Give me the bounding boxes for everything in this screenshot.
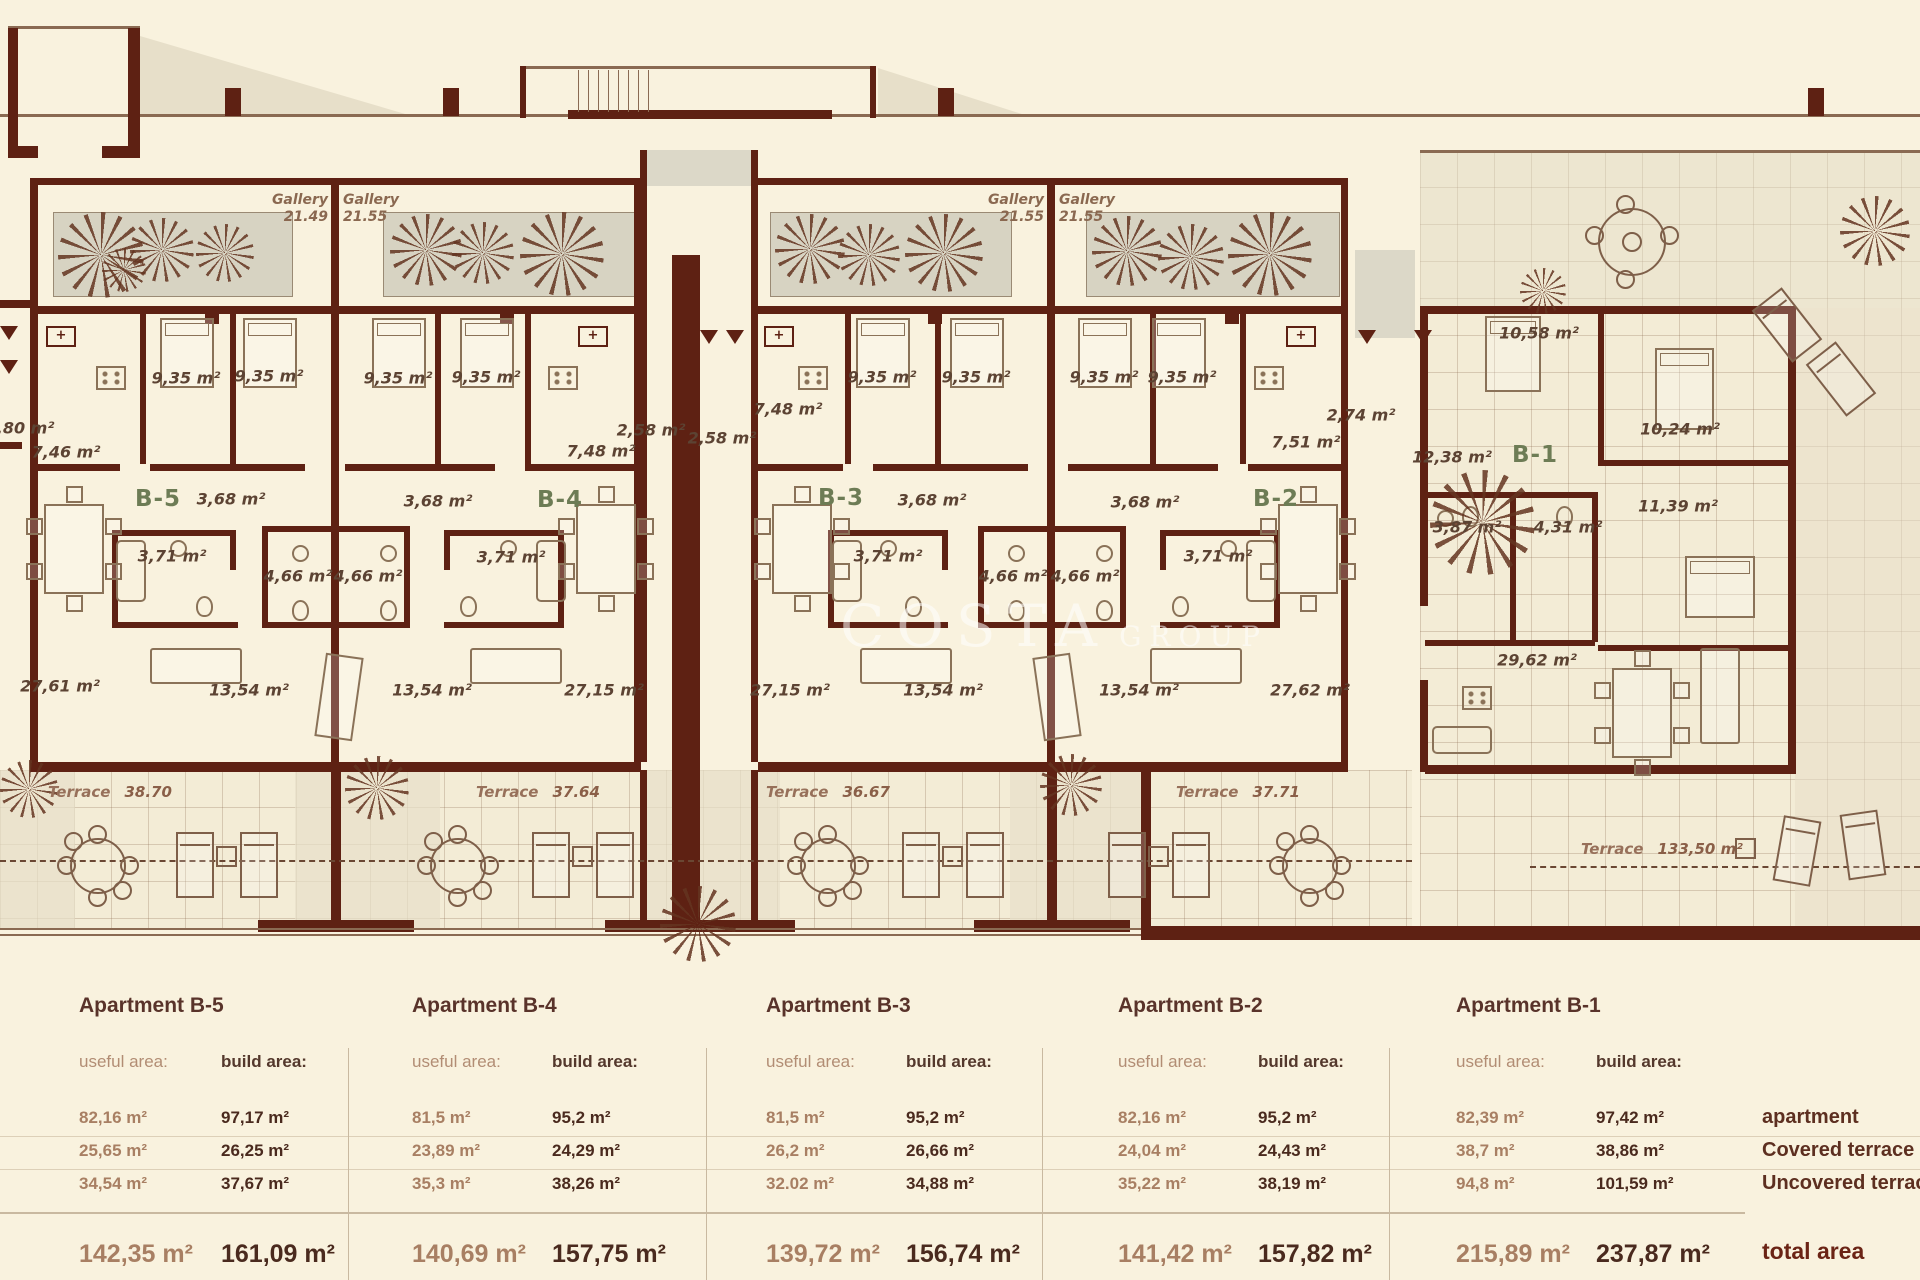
- gallery-name: Gallery: [272, 192, 328, 208]
- room-area-label: 4,66 m²: [1051, 567, 1120, 586]
- down-arrow-icon: [0, 360, 18, 374]
- stairs-icon: [588, 70, 589, 112]
- stairs-icon: [648, 70, 649, 112]
- stairs-icon: [618, 70, 619, 112]
- useful-area-value: 82,16 m²: [1118, 1108, 1186, 1128]
- chair-icon: [480, 856, 499, 875]
- chair-icon: [1260, 563, 1277, 580]
- chair-icon: [794, 595, 811, 612]
- room-area-label: 7,48 m²: [567, 442, 636, 461]
- room-area-label: 9,35 m²: [364, 369, 433, 388]
- useful-total-value: 142,35 m²: [79, 1240, 193, 1269]
- palm-icon: [196, 224, 254, 282]
- column: [225, 88, 241, 116]
- bathtub-icon: [1432, 726, 1492, 754]
- wall: [640, 150, 647, 762]
- room-area-label: 7,48 m²: [754, 400, 823, 419]
- apartment-id-label: B-5: [135, 486, 181, 512]
- chair-icon: [787, 856, 806, 875]
- chair-icon: [1673, 727, 1690, 744]
- wall: [640, 770, 647, 930]
- stove-icon: [1254, 366, 1284, 390]
- wall: [444, 530, 450, 570]
- wall: [8, 146, 38, 158]
- build-area-header: build area:: [221, 1052, 307, 1072]
- divider: [0, 1136, 1920, 1137]
- room-area-label: 27,61 m²: [20, 677, 100, 696]
- chair-icon: [818, 888, 837, 907]
- room-area-label: 9,35 m²: [1148, 368, 1217, 387]
- column-divider: [706, 1048, 707, 1280]
- room-area-label: 9,35 m²: [452, 368, 521, 387]
- stairs-icon: [578, 70, 579, 112]
- chair-icon: [843, 881, 862, 900]
- watermark-text: COSTA: [840, 592, 1109, 660]
- useful-area-value: 35,22 m²: [1118, 1174, 1186, 1194]
- room-area-label: 3,71 m²: [854, 547, 923, 566]
- column: [1808, 88, 1824, 116]
- useful-area-value: 25,65 m²: [79, 1141, 147, 1161]
- chair-icon: [558, 563, 575, 580]
- chair-icon: [66, 595, 83, 612]
- wall: [1425, 765, 1795, 774]
- useful-total-value: 139,72 m²: [766, 1240, 880, 1269]
- useful-area-value: 81,5 m²: [412, 1108, 471, 1128]
- gallery-level: 21.55: [1000, 209, 1044, 225]
- room-area-label: 11,39 m²: [1638, 497, 1718, 516]
- terrace-label: Terrace37.64: [476, 783, 600, 801]
- useful-total-value: 141,42 m²: [1118, 1240, 1232, 1269]
- palm-icon: [520, 212, 604, 296]
- terrace-area: 37.71: [1252, 783, 1299, 801]
- sofa-icon: [1700, 648, 1740, 744]
- sink-icon: [380, 545, 397, 562]
- terrace-label: Terrace37.71: [1176, 783, 1300, 801]
- room-area-label: 3,68 m²: [1111, 493, 1180, 512]
- useful-area-value: 26,2 m²: [766, 1141, 825, 1161]
- room-area-label: 27,15 m²: [750, 681, 830, 700]
- palm-icon: [1228, 212, 1312, 296]
- room-area-label: 4,66 m²: [264, 567, 333, 586]
- terrace-label: Terrace36.67: [766, 783, 890, 801]
- room-area-label: 13,54 m²: [1099, 681, 1179, 700]
- wall: [1598, 645, 1796, 651]
- build-area-value: 97,42 m²: [1596, 1108, 1664, 1128]
- apartment-id-label: B-4: [537, 487, 583, 513]
- sink-icon: [292, 545, 309, 562]
- build-total-value: 161,09 m²: [221, 1240, 335, 1269]
- down-arrow-icon: [726, 330, 744, 344]
- chair-icon: [598, 486, 615, 503]
- parasol-table-icon: [1598, 208, 1666, 276]
- gallery-level: 21.55: [1059, 209, 1103, 225]
- wall: [1598, 460, 1796, 466]
- wall: [1225, 306, 1239, 324]
- apartment-id-label: B-1: [1512, 442, 1558, 468]
- gallery-level: 21.55: [343, 209, 387, 225]
- apartment-column-title: Apartment B-3: [766, 994, 911, 1018]
- chair-icon: [637, 563, 654, 580]
- room-area-label: 9,35 m²: [152, 369, 221, 388]
- apartment-column-title: Apartment B-5: [79, 994, 224, 1018]
- apartment-id-label: B-3: [818, 485, 864, 511]
- wall: [525, 464, 640, 471]
- chair-icon: [637, 518, 654, 535]
- electrical-panel-icon: +: [46, 326, 76, 347]
- column-divider: [1042, 1048, 1043, 1280]
- chair-icon: [1585, 226, 1604, 245]
- wall: [974, 920, 1130, 932]
- room-area-label: 3,68 m²: [898, 491, 967, 510]
- chair-icon: [1634, 759, 1651, 776]
- gallery-label: Gallery21.55: [343, 192, 399, 226]
- lounger-icon: [176, 832, 214, 898]
- chair-icon: [1634, 650, 1651, 667]
- round-table-icon: [800, 838, 856, 894]
- electrical-panel-icon: +: [1286, 326, 1316, 347]
- wall: [845, 313, 851, 464]
- stairs-icon: [608, 70, 609, 112]
- wall: [331, 770, 341, 922]
- side-table-icon: [942, 846, 963, 867]
- palm-icon: [838, 224, 900, 286]
- build-area-value: 26,66 m²: [906, 1141, 974, 1161]
- build-area-header: build area:: [1258, 1052, 1344, 1072]
- dining-table-icon: [1278, 504, 1338, 594]
- useful-area-value: 81,5 m²: [766, 1108, 825, 1128]
- chair-icon: [1339, 518, 1356, 535]
- useful-area-value: 34,54 m²: [79, 1174, 147, 1194]
- chair-icon: [558, 518, 575, 535]
- room-area-label: 27,15 m²: [564, 681, 644, 700]
- wall: [935, 313, 941, 464]
- palm-icon: [1840, 196, 1910, 266]
- watermark: COSTAGROUP: [840, 592, 1268, 660]
- wall: [751, 770, 758, 930]
- wall: [112, 530, 232, 536]
- column: [443, 88, 459, 116]
- build-total-value: 157,75 m²: [552, 1240, 666, 1269]
- wall: [751, 150, 758, 762]
- palm-icon: [1092, 216, 1162, 286]
- wall: [758, 464, 843, 471]
- chair-icon: [1660, 226, 1679, 245]
- side-table-icon: [1148, 846, 1169, 867]
- build-total-value: 156,74 m²: [906, 1240, 1020, 1269]
- toilet-icon: [460, 596, 477, 617]
- useful-area-value: 23,89 m²: [412, 1141, 480, 1161]
- stove-icon: [96, 366, 126, 390]
- useful-area-value: 94,8 m²: [1456, 1174, 1515, 1194]
- gallery-name: Gallery: [988, 192, 1044, 208]
- build-area-value: 37,67 m²: [221, 1174, 289, 1194]
- toilet-icon: [292, 600, 309, 621]
- terrace-edge-line: [1420, 150, 1920, 153]
- wall: [444, 622, 564, 628]
- stove-icon: [1462, 686, 1492, 710]
- useful-area-value: 24,04 m²: [1118, 1141, 1186, 1161]
- room-area-label: 4,31 m²: [1534, 518, 1603, 537]
- wardrobe-icon: [1032, 653, 1081, 741]
- chair-icon: [26, 518, 43, 535]
- gallery-name: Gallery: [1059, 192, 1115, 208]
- elevator-icon: [8, 26, 140, 29]
- chair-icon: [818, 825, 837, 844]
- toilet-icon: [380, 600, 397, 621]
- room-area-label: 4,66 m²: [979, 567, 1048, 586]
- apartment-id-label: B-2: [1253, 486, 1299, 512]
- room-area-label: 2,74 m²: [1327, 406, 1396, 425]
- wall: [0, 442, 22, 449]
- room-area-label: 10,24 m²: [1640, 420, 1720, 439]
- chair-icon: [1269, 856, 1288, 875]
- wall: [520, 66, 526, 118]
- chair-icon: [1332, 856, 1351, 875]
- wall: [672, 255, 700, 932]
- palm-icon: [775, 214, 845, 284]
- room-area-label: 3,71 m²: [138, 547, 207, 566]
- row-label-apartment: apartment: [1762, 1106, 1859, 1129]
- chair-icon: [850, 856, 869, 875]
- room-area-label: 3,68 m²: [404, 492, 473, 511]
- lounger-icon: [532, 832, 570, 898]
- dining-table-icon: [1612, 668, 1672, 758]
- chair-icon: [1594, 682, 1611, 699]
- side-table-icon: [216, 846, 237, 867]
- lounger-icon: [902, 832, 940, 898]
- palm-icon: [452, 222, 514, 284]
- chair-icon: [88, 825, 107, 844]
- chair-icon: [417, 856, 436, 875]
- lounger-icon: [1108, 832, 1146, 898]
- wall: [102, 146, 140, 158]
- wall: [525, 313, 531, 464]
- shadow: [140, 36, 412, 116]
- column-divider: [1389, 1048, 1390, 1280]
- useful-area-header: useful area:: [1456, 1052, 1545, 1072]
- sink-icon: [1008, 545, 1025, 562]
- wall: [230, 530, 236, 570]
- room-area-label: 13,54 m²: [392, 681, 472, 700]
- chair-icon: [1616, 195, 1635, 214]
- wall: [1420, 680, 1428, 772]
- build-area-value: 38,86 m²: [1596, 1141, 1664, 1161]
- chair-icon: [448, 888, 467, 907]
- entry-walkway: [1355, 250, 1415, 338]
- chair-icon: [1276, 832, 1295, 851]
- wall: [1068, 464, 1218, 471]
- build-area-header: build area:: [906, 1052, 992, 1072]
- room-area-label: 3,71 m²: [477, 548, 546, 567]
- divider: [0, 1212, 1745, 1214]
- sink-icon: [1096, 545, 1113, 562]
- room-area-label: 9,35 m²: [1070, 368, 1139, 387]
- terrace-area: 38.70: [124, 783, 171, 801]
- build-area-value: 38,26 m²: [552, 1174, 620, 1194]
- room-area-label: 2,58 m²: [617, 421, 686, 440]
- wall: [1240, 313, 1246, 464]
- room-area-label: 9,35 m²: [848, 368, 917, 387]
- useful-area-header: useful area:: [412, 1052, 501, 1072]
- wall: [1788, 306, 1796, 774]
- build-area-value: 24,29 m²: [552, 1141, 620, 1161]
- useful-area-value: 32.02 m²: [766, 1174, 834, 1194]
- chair-icon: [754, 563, 771, 580]
- floor-plan-page: + + + + Gallery21.49 Gallery21.55 Galler…: [0, 0, 1920, 1280]
- useful-total-value: 215,89 m²: [1456, 1240, 1570, 1269]
- room-area-label: 3,71 m²: [1184, 547, 1253, 566]
- bed-icon: [1655, 348, 1714, 430]
- bed-icon: [1685, 556, 1755, 618]
- terrace-area: 133,50 m²: [1657, 840, 1742, 858]
- chair-icon: [794, 486, 811, 503]
- room-area-label: 7,46 m²: [32, 443, 101, 462]
- lounger-icon: [240, 832, 278, 898]
- wall: [150, 464, 305, 471]
- row-label-total-area: total area: [1762, 1238, 1864, 1265]
- walkway-line: [0, 114, 1920, 117]
- chair-icon: [26, 563, 43, 580]
- useful-total-value: 140,69 m²: [412, 1240, 526, 1269]
- chair-icon: [66, 486, 83, 503]
- gallery-label: Gallery21.55: [1059, 192, 1115, 226]
- room-area-label: 13,54 m²: [209, 681, 289, 700]
- chair-icon: [1616, 270, 1635, 289]
- build-area-header: build area:: [1596, 1052, 1682, 1072]
- wall: [0, 300, 30, 308]
- chair-icon: [448, 825, 467, 844]
- round-table-icon: [430, 838, 486, 894]
- wall: [870, 66, 876, 118]
- build-area-value: 97,17 m²: [221, 1108, 289, 1128]
- room-area-label: 3,68 m²: [197, 490, 266, 509]
- chair-icon: [1300, 825, 1319, 844]
- palm-icon: [345, 756, 409, 820]
- chair-icon: [424, 832, 443, 851]
- chair-icon: [754, 518, 771, 535]
- wall: [1592, 492, 1598, 642]
- gallery-name: Gallery: [343, 192, 399, 208]
- wall: [128, 28, 140, 152]
- divider: [0, 1169, 1920, 1170]
- chair-icon: [1673, 682, 1690, 699]
- terrace-label: Terrace38.70: [48, 783, 172, 801]
- gallery-label: Gallery21.55: [964, 192, 1044, 226]
- wall: [978, 526, 1126, 532]
- row-label-covered-terrace: Covered terrace: [1762, 1139, 1914, 1162]
- chair-icon: [88, 888, 107, 907]
- wall: [873, 464, 1028, 471]
- palm-icon: [660, 886, 736, 962]
- apartment-column-title: Apartment B-1: [1456, 994, 1601, 1018]
- wall: [230, 313, 236, 464]
- chair-icon: [473, 881, 492, 900]
- chair-icon: [105, 563, 122, 580]
- build-area-value: 95,2 m²: [1258, 1108, 1317, 1128]
- terrace-area: 37.64: [552, 783, 599, 801]
- dining-table-icon: [772, 504, 832, 594]
- wall: [35, 464, 120, 471]
- chair-icon: [598, 595, 615, 612]
- room-area-label: 2,58 m²: [688, 429, 757, 448]
- terrace-name: Terrace: [1176, 783, 1238, 801]
- chair-icon: [1325, 881, 1344, 900]
- wall: [1425, 640, 1595, 646]
- build-area-value: 38,19 m²: [1258, 1174, 1326, 1194]
- wall: [444, 530, 564, 536]
- palm-icon: [1158, 224, 1224, 290]
- lounger-icon: [1172, 832, 1210, 898]
- chair-icon: [1300, 888, 1319, 907]
- apartment-column-title: Apartment B-4: [412, 994, 557, 1018]
- chair-icon: [1594, 727, 1611, 744]
- down-arrow-icon: [700, 330, 718, 344]
- wall: [262, 622, 410, 628]
- sofa-icon: [470, 648, 562, 684]
- column-divider: [348, 1048, 349, 1280]
- sofa-icon: [150, 648, 242, 684]
- room-area-label: 12,38 m²: [1412, 448, 1492, 467]
- chair-icon: [1260, 518, 1277, 535]
- gallery-level: 21.49: [284, 209, 328, 225]
- chair-icon: [1300, 486, 1317, 503]
- stove-icon: [548, 366, 578, 390]
- chair-icon: [833, 563, 850, 580]
- build-area-value: 26,25 m²: [221, 1141, 289, 1161]
- chair-icon: [1339, 563, 1356, 580]
- palm-icon: [1520, 268, 1566, 314]
- wall: [112, 622, 238, 628]
- room-area-label: 27,62 m²: [1270, 681, 1350, 700]
- terrace-area: 36.67: [842, 783, 889, 801]
- chair-icon: [113, 881, 132, 900]
- lounger-icon: [966, 832, 1004, 898]
- useful-area-value: 82,16 m²: [79, 1108, 147, 1128]
- wall: [1248, 464, 1348, 471]
- chair-icon: [57, 856, 76, 875]
- terrace-name: Terrace: [48, 783, 110, 801]
- useful-area-header: useful area:: [766, 1052, 855, 1072]
- room-area-label: 9,35 m²: [235, 367, 304, 386]
- apartment-column-title: Apartment B-2: [1118, 994, 1263, 1018]
- wall: [1141, 926, 1920, 940]
- gallery-label: Gallery21.49: [248, 192, 328, 226]
- wardrobe-icon: [314, 653, 363, 741]
- chair-icon: [1300, 595, 1317, 612]
- dining-table-icon: [44, 504, 104, 594]
- chair-icon: [833, 518, 850, 535]
- wall: [1425, 306, 1795, 314]
- stove-icon: [798, 366, 828, 390]
- room-area-label: 29,62 m²: [1497, 651, 1577, 670]
- electrical-panel-icon: +: [578, 326, 608, 347]
- terrace-label: Terrace133,50 m²: [1581, 840, 1743, 858]
- wall: [435, 313, 441, 464]
- dining-table-icon: [576, 504, 636, 594]
- lounger-icon: [596, 832, 634, 898]
- room-area-label: 2,80 m²: [0, 419, 54, 438]
- terrace-name: Terrace: [1581, 840, 1643, 858]
- entry-walkway: [647, 150, 751, 186]
- wall: [1160, 530, 1166, 570]
- useful-area-value: 82,39 m²: [1456, 1108, 1524, 1128]
- wall: [258, 920, 414, 932]
- stairs-icon: [638, 70, 639, 112]
- stairs-icon: [628, 70, 629, 112]
- room-area-label: 9,35 m²: [942, 368, 1011, 387]
- wall: [942, 530, 948, 570]
- wall: [404, 526, 410, 628]
